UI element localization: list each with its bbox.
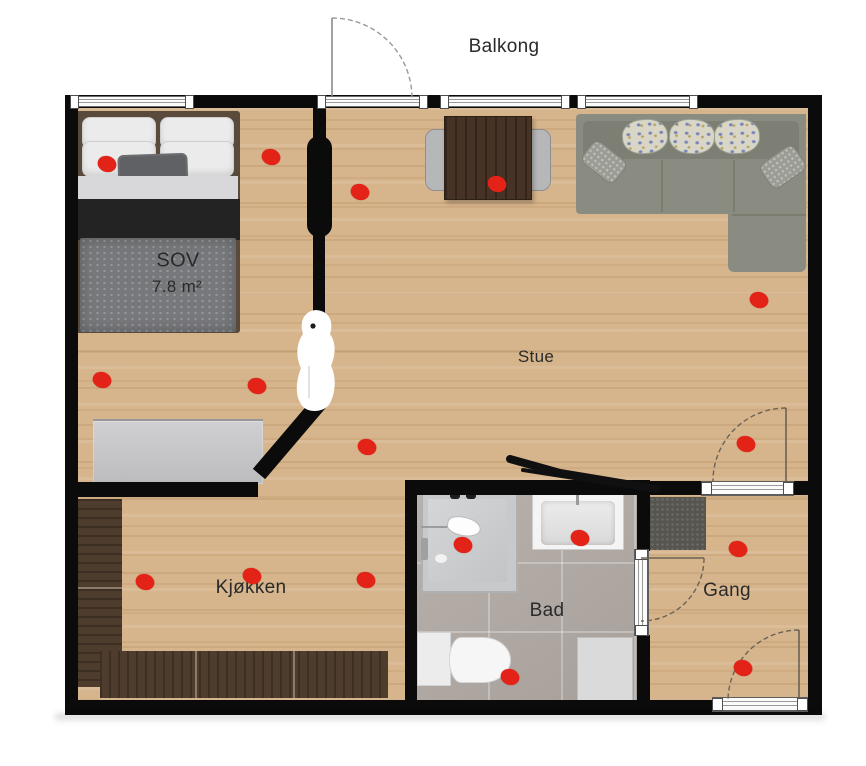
shower-soap [435, 554, 447, 563]
kitchen-floor-notch [78, 687, 100, 700]
label-bad: Bad [530, 600, 565, 622]
wall-bath-right [637, 635, 650, 702]
label-gang: Gang [703, 580, 751, 602]
toilet-cistern [417, 632, 451, 686]
wall-stue-gang [794, 481, 810, 495]
window-living-1 [448, 96, 562, 107]
doormat [650, 497, 706, 550]
wall-bath-right [637, 493, 650, 551]
door-threshold-entrance [712, 697, 808, 712]
label-stue: Stue [518, 347, 554, 367]
balcony-door-arc [332, 18, 412, 98]
kitchen-counter-divider [78, 587, 122, 589]
kitchen-counter-divider [293, 651, 295, 698]
sofa-cushion-seam [661, 160, 663, 212]
bed-sheet-band [76, 176, 238, 201]
floorplan-canvas: Balkong SOV 7.8 m² Stue Kjøkken Bad Gang [0, 0, 866, 766]
sofa-cushion-seam [733, 160, 735, 212]
label-sov-area: 7.8 m² [152, 277, 202, 297]
door-threshold-bad-gang [634, 549, 649, 636]
window-bedroom [78, 96, 186, 107]
plan-shadow [55, 714, 825, 723]
shower-bracket [421, 538, 428, 560]
sofa-pillow-floral [668, 118, 716, 155]
door-threshold-stue-gang [701, 481, 794, 496]
wall-bedroom-right [313, 315, 325, 408]
wall-kitchen-top [65, 482, 258, 497]
bed-blanket [74, 199, 240, 240]
wall-bath-left [405, 493, 417, 700]
kitchen-counter-bottom [100, 651, 388, 698]
wall-outer-left [65, 95, 78, 715]
dining-chair-right [529, 129, 551, 191]
label-sov: SOV [156, 250, 199, 273]
wall-stue-gang [637, 481, 701, 495]
wall-outer-right [808, 95, 822, 715]
window-balcony-door [325, 96, 420, 107]
wardrobe [93, 419, 263, 484]
washing-machine [577, 637, 633, 702]
window-living-2 [585, 96, 690, 107]
wall-bath-top [405, 480, 650, 495]
kitchen-counter-divider [195, 651, 197, 698]
bedroom-door-leaf [307, 136, 332, 237]
label-balkong: Balkong [469, 36, 540, 58]
sink-tap [576, 495, 579, 505]
sofa-cushion-seam [732, 214, 806, 216]
wall-bedroom-right [313, 235, 325, 317]
wall-outer-bottom [65, 700, 822, 715]
